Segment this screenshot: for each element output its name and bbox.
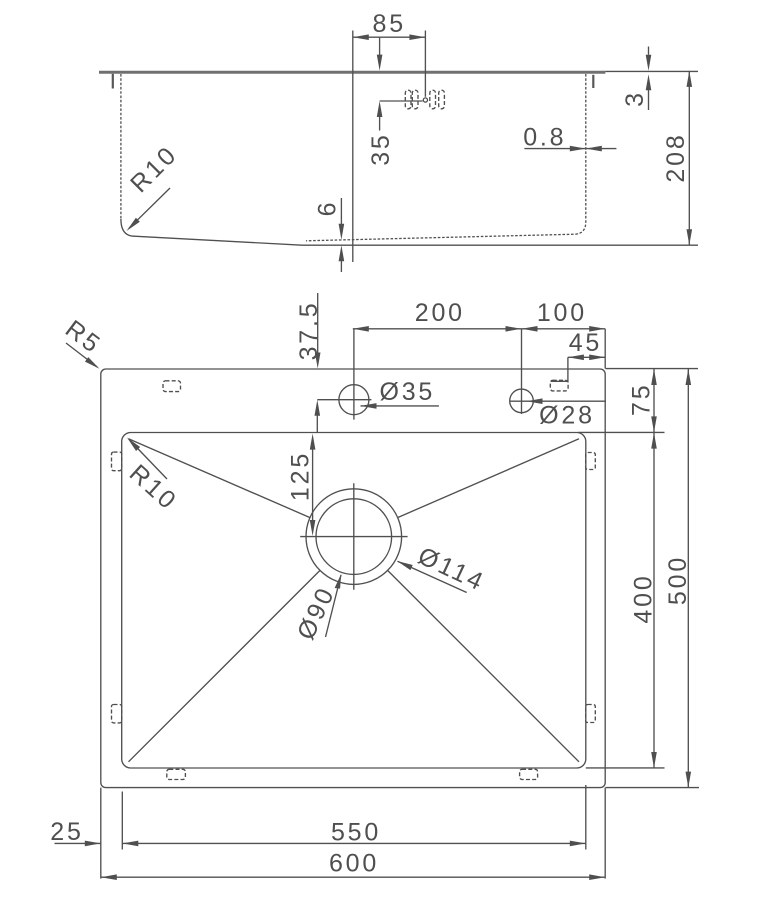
svg-text:6: 6: [314, 200, 342, 217]
svg-text:500: 500: [664, 555, 692, 605]
svg-text:100: 100: [537, 299, 587, 327]
svg-text:R10: R10: [125, 140, 183, 198]
svg-text:3: 3: [621, 90, 649, 107]
svg-text:75: 75: [627, 383, 655, 416]
svg-text:R5: R5: [60, 315, 107, 360]
svg-text:0.8: 0.8: [523, 123, 566, 151]
svg-text:Ø28: Ø28: [539, 402, 595, 430]
svg-text:200: 200: [415, 299, 465, 327]
svg-text:Ø114: Ø114: [414, 542, 490, 597]
svg-text:25: 25: [50, 818, 83, 846]
svg-text:550: 550: [331, 819, 381, 847]
svg-text:600: 600: [329, 849, 379, 877]
svg-text:45: 45: [569, 329, 602, 357]
svg-text:125: 125: [286, 451, 314, 501]
svg-text:35: 35: [367, 132, 395, 165]
svg-text:208: 208: [662, 132, 690, 182]
svg-text:R10: R10: [124, 459, 183, 516]
svg-text:400: 400: [629, 573, 657, 623]
svg-text:85: 85: [372, 10, 405, 38]
svg-text:37.5: 37.5: [295, 301, 323, 361]
svg-text:Ø35: Ø35: [379, 378, 435, 406]
